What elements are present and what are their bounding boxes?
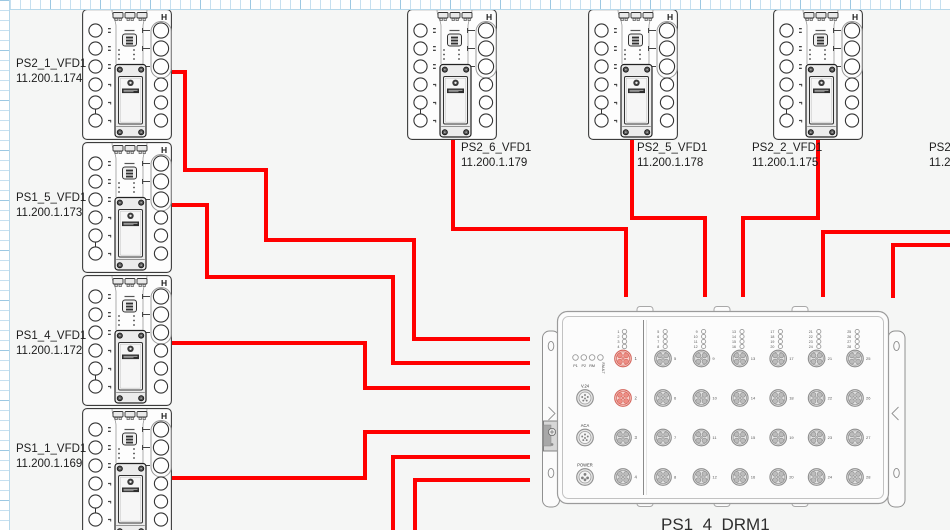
device-name: PS2_2_VFD1 (752, 141, 822, 156)
svg-text:27: 27 (866, 435, 871, 440)
device-name: PS2_1_VFD1 (16, 57, 86, 72)
svg-text:26: 26 (866, 396, 871, 401)
svg-text:24: 24 (828, 475, 833, 480)
svg-text:10: 10 (694, 335, 698, 339)
device-ip: 11.200.1.179 (461, 156, 531, 171)
device-label-ps2_2: PS2_2_VFD1 11.200.1.175 (752, 141, 822, 171)
svg-text:12: 12 (694, 345, 698, 349)
svg-text:19: 19 (770, 340, 774, 344)
svg-text:P2: P2 (582, 364, 587, 368)
svg-text:15: 15 (732, 340, 736, 344)
svg-text:1: 1 (617, 330, 619, 334)
drm-title: PS1_4_DRM1 (661, 515, 770, 530)
svg-text:9: 9 (696, 330, 698, 334)
svg-text:16: 16 (751, 475, 756, 480)
svg-text:18: 18 (770, 335, 774, 339)
drm-body (558, 312, 889, 504)
svg-text:25: 25 (847, 330, 851, 334)
svg-text:V.24: V.24 (581, 384, 590, 389)
svg-text:20: 20 (770, 345, 774, 349)
svg-text:28: 28 (866, 475, 871, 480)
svg-text:POWER: POWER (577, 463, 593, 468)
svg-text:10: 10 (712, 396, 717, 401)
device-name: PS2_6_VFD1 (461, 141, 531, 156)
device-ip: 11.200.1.169 (16, 457, 86, 472)
grid-ruler-left (0, 0, 10, 530)
device-label-ps1_4: PS1_4_VFD1 11.200.1.172 (16, 329, 86, 359)
svg-text:17: 17 (770, 330, 774, 334)
topology-diagram: H (0, 0, 950, 530)
connection-wire-PS1_4_VFD1[interactable] (172, 343, 530, 388)
topology-canvas: H (0, 0, 950, 530)
svg-text:12: 12 (712, 475, 717, 480)
device-ps1_1-vfd1[interactable] (83, 409, 172, 530)
svg-text:24: 24 (809, 345, 813, 349)
svg-text:21: 21 (828, 356, 833, 361)
svg-text:25: 25 (866, 356, 871, 361)
svg-text:23: 23 (828, 435, 833, 440)
svg-text:17: 17 (789, 356, 794, 361)
device-name: PS1_4_VFD1 (16, 329, 86, 344)
device-name: PS1_1_VFD1 (16, 442, 86, 457)
device-ip: 11.200.1.173 (16, 206, 86, 221)
svg-text:2: 2 (617, 335, 619, 339)
svg-text:11: 11 (694, 340, 698, 344)
svg-text:19: 19 (789, 435, 794, 440)
connection-wire-offscreen-right-1[interactable] (823, 232, 950, 297)
svg-text:21: 21 (809, 330, 813, 334)
device-ps1_5-vfd1[interactable] (83, 143, 172, 273)
svg-text:22: 22 (809, 335, 813, 339)
svg-text:7: 7 (657, 340, 659, 344)
grid-ruler-top (0, 0, 950, 10)
svg-text:26: 26 (847, 335, 851, 339)
svg-text:16: 16 (732, 345, 736, 349)
svg-text:6: 6 (657, 335, 659, 339)
device-ip: 11.200.1.175 (752, 156, 822, 171)
svg-text:3: 3 (617, 340, 619, 344)
svg-text:8: 8 (657, 345, 659, 349)
svg-text:ACA: ACA (581, 423, 590, 428)
svg-text:RM: RM (589, 364, 595, 368)
svg-text:22: 22 (828, 396, 833, 401)
device-label-ps1_1: PS1_1_VFD1 11.200.1.169 (16, 442, 86, 472)
device-ps2_1-vfd1[interactable] (83, 10, 172, 140)
svg-text:FAULT: FAULT (601, 363, 605, 375)
device-name: PS1_5_VFD1 (16, 191, 86, 206)
svg-text:27: 27 (847, 340, 851, 344)
device-ip: 11.200.1.178 (637, 156, 707, 171)
device-ps2_5-vfd1[interactable] (589, 10, 678, 140)
device-ps1_4-drm1[interactable]: P1P2RMFAULT12341234V.24ACAPOWER567856789… (543, 307, 906, 508)
device-name: PS2_ (929, 141, 950, 156)
connection-wire-offscreen-bottom-2[interactable] (415, 480, 530, 530)
svg-text:4: 4 (617, 345, 619, 349)
device-label-ps2_5: PS2_5_VFD1 11.200.1.178 (637, 141, 707, 171)
connection-wire-offscreen-right-2[interactable] (893, 245, 950, 298)
device-ps2_2-vfd1[interactable] (774, 10, 863, 140)
svg-text:20: 20 (789, 475, 794, 480)
svg-text:13: 13 (732, 330, 736, 334)
svg-text:13: 13 (751, 356, 756, 361)
svg-text:P1: P1 (573, 364, 578, 368)
svg-text:14: 14 (732, 335, 736, 339)
svg-text:14: 14 (751, 396, 756, 401)
device-label-offscreen-right: PS2_ 11.2 (929, 141, 950, 171)
svg-text:5: 5 (657, 330, 659, 334)
mounting-bracket-right (888, 331, 905, 507)
device-ip: 11.200.1.172 (16, 344, 86, 359)
device-ps1_4-vfd1[interactable] (83, 276, 172, 406)
device-label-ps2_6: PS2_6_VFD1 11.200.1.179 (461, 141, 531, 171)
device-name: PS2_5_VFD1 (637, 141, 707, 156)
svg-text:23: 23 (809, 340, 813, 344)
svg-text:28: 28 (847, 345, 851, 349)
device-label-ps1_5: PS1_5_VFD1 11.200.1.173 (16, 191, 86, 221)
svg-text:15: 15 (751, 435, 756, 440)
device-label-ps2_1: PS2_1_VFD1 11.200.1.174 (16, 57, 86, 87)
svg-text:18: 18 (789, 396, 794, 401)
device-ps2_6-vfd1[interactable] (408, 10, 497, 140)
device-ip: 11.200.1.174 (16, 72, 86, 87)
device-ip: 11.2 (929, 156, 950, 171)
